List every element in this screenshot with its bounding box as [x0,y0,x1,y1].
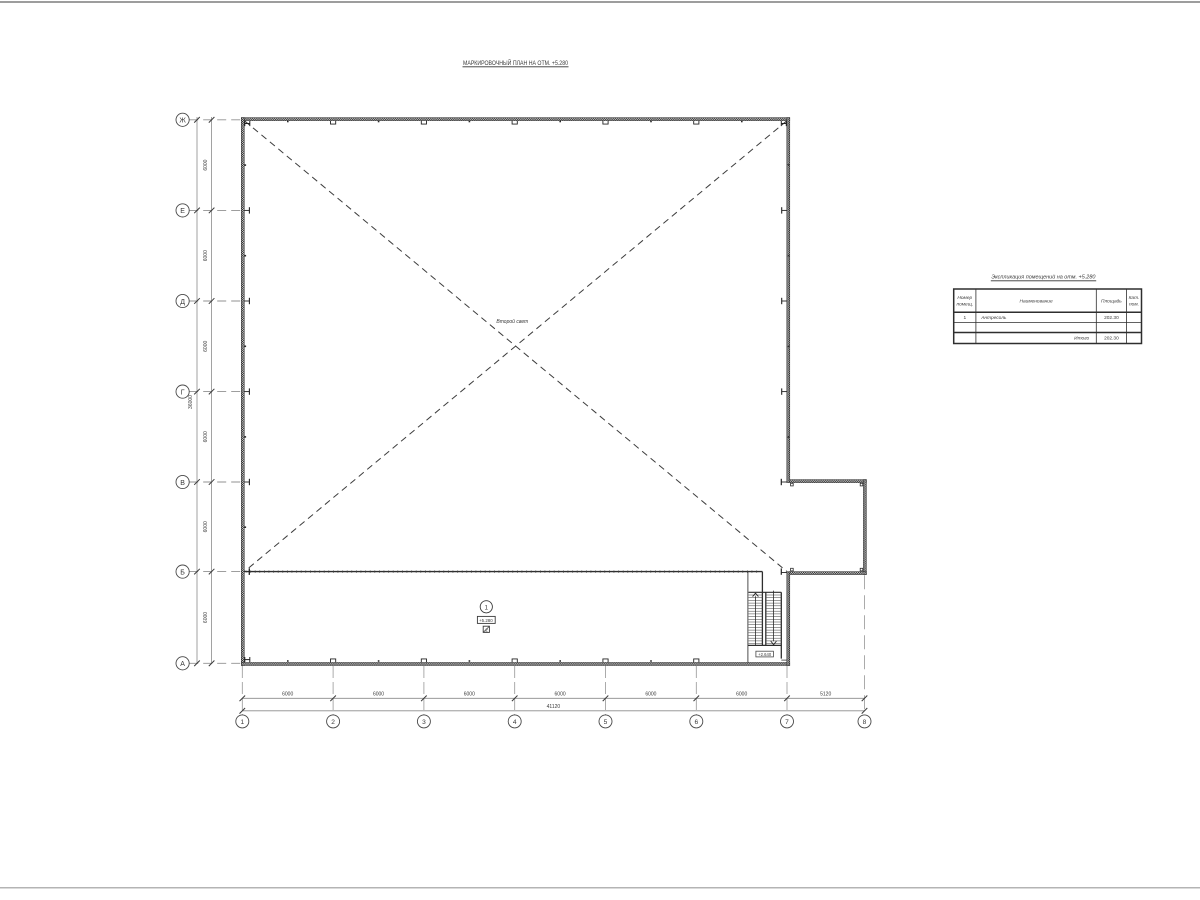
svg-text:Наименование: Наименование [1020,299,1053,305]
svg-text:6000: 6000 [203,521,209,532]
svg-text:Антресоль: Антресоль [980,315,1007,321]
svg-text:6000: 6000 [373,691,384,697]
svg-text:202.30: 202.30 [1104,336,1119,342]
svg-text:6000: 6000 [464,691,475,697]
svg-text:Е: Е [180,208,185,215]
svg-text:41120: 41120 [547,704,561,710]
svg-text:6000: 6000 [555,691,566,697]
svg-text:6000: 6000 [203,341,209,352]
svg-text:Площадь: Площадь [1101,299,1122,305]
svg-text:36000: 36000 [188,395,194,409]
svg-text:Второй свет: Второй свет [496,318,528,325]
svg-text:6000: 6000 [645,691,656,697]
svg-text:Г: Г [181,389,185,396]
svg-text:Ж: Ж [179,118,186,125]
svg-text:202.30: 202.30 [1104,315,1119,321]
svg-text:А: А [180,661,185,668]
svg-text:5: 5 [604,719,608,726]
svg-text:помещ.: помещ. [956,302,973,307]
svg-text:6000: 6000 [203,612,209,623]
svg-text:+2.640: +2.640 [758,652,772,657]
svg-text:8: 8 [863,719,867,726]
svg-text:4: 4 [513,719,517,726]
svg-text:Итого: Итого [1074,336,1089,342]
svg-text:+5.280: +5.280 [479,618,493,623]
svg-text:Экспликация помещений на отм.: Экспликация помещений на отм. +5.280 [991,274,1096,281]
svg-text:5120: 5120 [820,691,831,697]
svg-text:В: В [180,480,185,487]
svg-text:Кат.: Кат. [1129,295,1140,301]
svg-text:1: 1 [963,315,966,321]
svg-text:6: 6 [694,719,698,726]
svg-text:6000: 6000 [203,159,209,170]
svg-text:пом.: пом. [1129,302,1139,307]
svg-text:3: 3 [422,719,426,726]
svg-text:1: 1 [485,604,489,611]
svg-text:6000: 6000 [203,250,209,261]
svg-text:2: 2 [331,719,335,726]
svg-text:1: 1 [240,719,244,726]
svg-text:6000: 6000 [203,431,209,442]
svg-text:МАРКИРОВОЧНЫЙ ПЛАН НА ОТМ. +5.: МАРКИРОВОЧНЫЙ ПЛАН НА ОТМ. +5.280 [463,58,568,67]
svg-text:6000: 6000 [736,691,747,697]
svg-text:Номер: Номер [957,295,972,301]
svg-text:6000: 6000 [282,691,293,697]
svg-text:7: 7 [785,719,789,726]
svg-text:2: 2 [485,628,488,633]
svg-text:Б: Б [180,569,185,576]
svg-text:Д: Д [180,299,185,306]
